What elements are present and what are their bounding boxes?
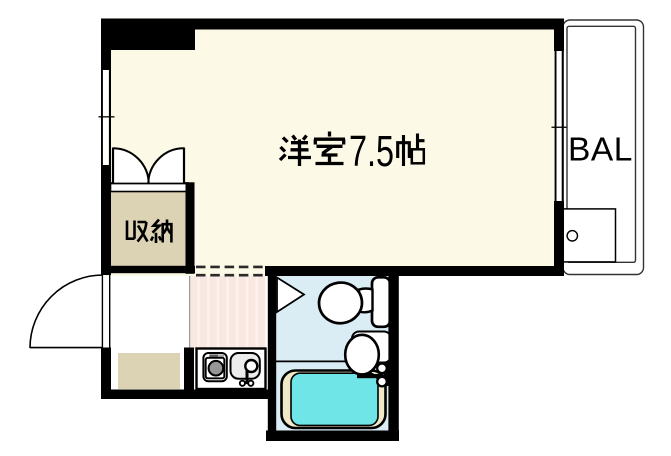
svg-text:7.5: 7.5 (349, 128, 394, 176)
svg-text:BAL: BAL (568, 132, 633, 169)
